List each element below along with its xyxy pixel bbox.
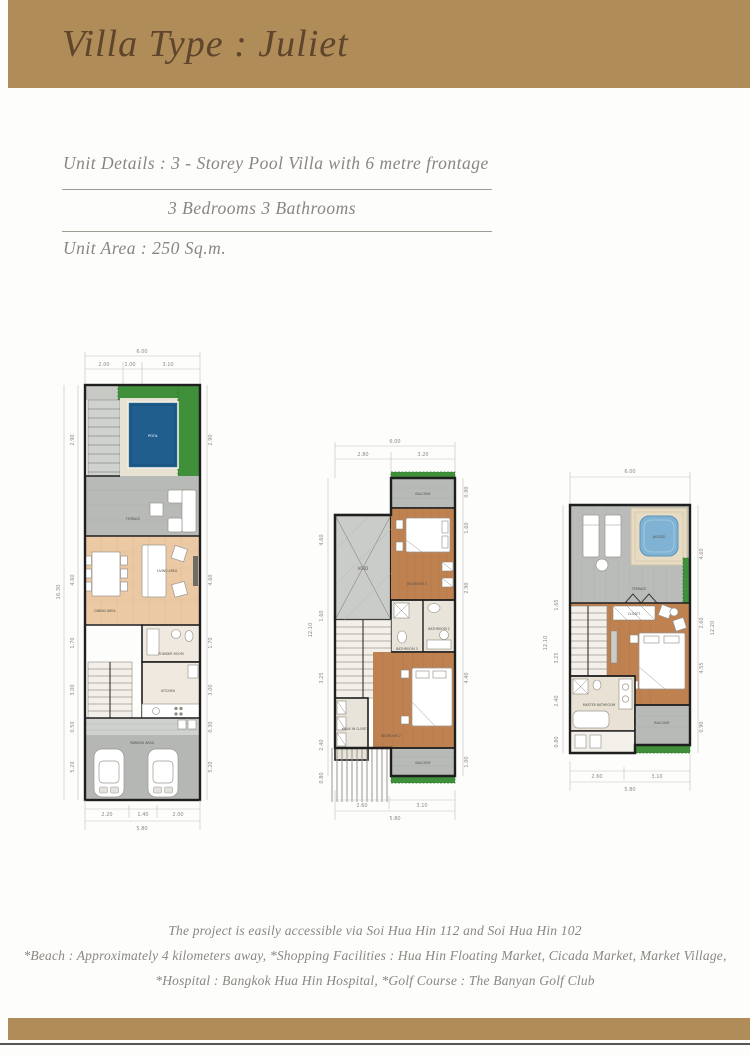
footer-rule (0, 1043, 750, 1045)
svg-text:2.00: 2.00 (172, 812, 183, 818)
dimensions-left: 4.60 1.60 3.25 2.40 0.80 12.10 (308, 478, 328, 784)
parking-area: PARKING AREA (85, 735, 200, 800)
svg-text:3.10: 3.10 (162, 362, 173, 368)
svg-text:3.25: 3.25 (554, 652, 560, 663)
dimensions-right: 0.90 1.60 2.90 4.40 1.00 (463, 478, 470, 776)
footer-access-line: The project is easily accessible via Soi… (0, 923, 750, 939)
divider-line (62, 231, 492, 232)
bedroom-3: BEDROOM 3 (391, 508, 455, 600)
void-label: VOID (358, 566, 369, 571)
svg-text:6.00: 6.00 (624, 469, 635, 475)
svg-text:5.20: 5.20 (208, 761, 214, 772)
svg-text:4.60: 4.60 (319, 534, 325, 545)
bedrooms-bathrooms-line: 3 Bedrooms 3 Bathrooms (168, 198, 356, 219)
jacuzzi-label: JACUZZI (652, 535, 666, 539)
balcony-label: BALCONY (415, 761, 430, 765)
svg-text:12.20: 12.20 (710, 621, 716, 636)
service-strip (570, 731, 635, 753)
svg-text:0.90: 0.90 (699, 721, 705, 732)
svg-text:1.40: 1.40 (137, 812, 148, 818)
svg-text:5.80: 5.80 (389, 816, 400, 822)
bedroom-2: BEDROOM 2 (373, 652, 455, 748)
svg-text:4.60: 4.60 (699, 548, 705, 559)
svg-text:3.10: 3.10 (416, 803, 427, 809)
bedroom3-label: BEDROOM 3 (407, 582, 427, 586)
sky-terrace: JACUZZI TERRACE (570, 505, 690, 603)
bedroom2-label: BEDROOM 2 (381, 734, 401, 738)
jacuzzi: JACUZZI (631, 508, 687, 565)
svg-text:1.70: 1.70 (70, 637, 76, 648)
dimensions-right: 2.90 4.60 1.70 3.00 0.30 5.20 (208, 434, 214, 772)
svg-text:3.10: 3.10 (651, 774, 662, 780)
bathrooms: BATHROOM 3 BATHROOM 2 (391, 600, 455, 652)
terrace: TERRACE (85, 476, 200, 536)
svg-text:3.25: 3.25 (319, 672, 325, 683)
svg-text:5.20: 5.20 (70, 761, 76, 772)
dining-label: DINING AREA (94, 609, 116, 613)
powder-room-label: POWDER ROOM (158, 652, 184, 656)
kitchen: KITCHEN (142, 662, 200, 718)
svg-text:4.60: 4.60 (70, 574, 76, 585)
svg-text:1.70: 1.70 (208, 637, 214, 648)
unit-details-line: Unit Details : 3 - Storey Pool Villa wit… (63, 153, 489, 174)
svg-text:0.90: 0.90 (464, 486, 470, 497)
dimensions-left: 1.65 3.25 2.40 0.80 12.10 (543, 505, 563, 753)
powder-room: POWDER ROOM (142, 625, 200, 662)
dining-table (85, 552, 128, 596)
void: VOID (335, 515, 391, 620)
svg-text:5.80: 5.80 (136, 826, 147, 832)
svg-text:1.60: 1.60 (319, 610, 325, 621)
closet-label: WALK IN CLOSET (342, 727, 369, 731)
svg-text:2.90: 2.90 (70, 434, 76, 445)
svg-text:4.40: 4.40 (464, 672, 470, 683)
svg-text:3.00: 3.00 (208, 684, 214, 695)
floor-plan-ground: 6.00 2.00 1.00 3.10 GARDEN (30, 340, 240, 845)
dimensions-left: 2.90 4.60 1.70 3.00 0.50 5.20 16.30 (56, 385, 76, 800)
svg-text:0.30: 0.30 (208, 721, 214, 732)
dimensions-bottom: 2.60 3.10 5.80 (335, 790, 455, 822)
floor-plan-second: 6.00 2.80 3.20 BALCONY VOID (292, 430, 487, 830)
svg-text:2.60: 2.60 (699, 617, 705, 628)
footer-gold-bar (8, 1018, 750, 1040)
svg-text:12.10: 12.10 (543, 636, 549, 651)
bathroom2-label: BATHROOM 2 (428, 627, 450, 631)
divider-line (62, 189, 492, 190)
car (148, 749, 178, 797)
svg-text:2.60: 2.60 (356, 803, 367, 809)
svg-text:3.00: 3.00 (70, 684, 76, 695)
living-dining-area: DINING AREA LIVING AREA (85, 536, 201, 625)
pool: POOL (120, 385, 200, 490)
closet-label: CLOSET (628, 612, 640, 616)
svg-text:2.80: 2.80 (357, 452, 368, 458)
svg-text:6.00: 6.00 (389, 439, 400, 445)
closet: CLOSET (613, 606, 655, 620)
svg-text:16.30: 16.30 (56, 585, 62, 600)
living-label: LIVING AREA (157, 569, 178, 573)
svg-text:1.00: 1.00 (124, 362, 135, 368)
svg-text:1.60: 1.60 (464, 522, 470, 533)
parking-label: PARKING AREA (130, 741, 154, 745)
kitchen-label: KITCHEN (161, 689, 175, 693)
balcony-label: BALCONY (415, 492, 430, 496)
svg-text:0.80: 0.80 (319, 772, 325, 783)
svg-text:3.20: 3.20 (417, 452, 428, 458)
floor-plan-third: 6.00 JACUZZI (527, 453, 722, 808)
dimensions-bottom: 2.20 1.40 2.00 5.80 (85, 800, 200, 832)
dimensions-top: 6.00 2.00 1.00 3.10 (85, 349, 200, 385)
svg-text:5.80: 5.80 (624, 787, 635, 793)
svg-text:1.00: 1.00 (464, 756, 470, 767)
pool-label: POOL (148, 434, 158, 438)
terrace-label: TERRACE (631, 587, 647, 591)
master-bathroom-label: MASTER BATHROOM (583, 703, 616, 707)
svg-text:0.50: 0.50 (70, 721, 76, 732)
svg-text:2.40: 2.40 (319, 739, 325, 750)
page-title: Villa Type : Juliet (62, 22, 349, 66)
dimensions-bottom: 2.60 3.10 5.80 (570, 753, 690, 793)
footer-hospital-golf-line: *Hospital : Bangkok Hua Hin Hospital, *G… (0, 973, 750, 989)
svg-text:0.80: 0.80 (554, 736, 560, 747)
svg-text:4.55: 4.55 (699, 662, 705, 673)
terrace-label: TERRACE (125, 517, 141, 521)
interior-staircase (88, 662, 132, 718)
car (94, 749, 124, 797)
bathroom3-label: BATHROOM 3 (396, 647, 418, 651)
svg-text:12.10: 12.10 (308, 623, 314, 638)
svg-text:2.90: 2.90 (208, 434, 214, 445)
balcony-label: BALCONY (654, 721, 669, 725)
balcony-bottom: BALCONY (391, 748, 455, 783)
svg-text:6.00: 6.00 (136, 349, 147, 355)
svg-text:1.65: 1.65 (554, 599, 560, 610)
svg-text:2.20: 2.20 (101, 812, 112, 818)
staircase (570, 606, 607, 676)
unit-area-line: Unit Area : 250 Sq.m. (63, 238, 226, 259)
svg-text:2.40: 2.40 (554, 695, 560, 706)
svg-text:4.60: 4.60 (208, 574, 214, 585)
svg-text:2.60: 2.60 (591, 774, 602, 780)
svg-text:2.90: 2.90 (464, 582, 470, 593)
dimensions-right: 4.60 2.60 4.55 0.90 12.20 (698, 505, 716, 753)
svg-text:2.00: 2.00 (98, 362, 109, 368)
brochure-page: Villa Type : Juliet Unit Details : 3 - S… (0, 0, 750, 1056)
footer-amenities-line: *Beach : Approximately 4 kilometers away… (0, 948, 750, 964)
dimensions-top: 6.00 (570, 469, 690, 505)
porch-strip (85, 718, 200, 735)
master-bathroom: MASTER BATHROOM (570, 676, 635, 731)
